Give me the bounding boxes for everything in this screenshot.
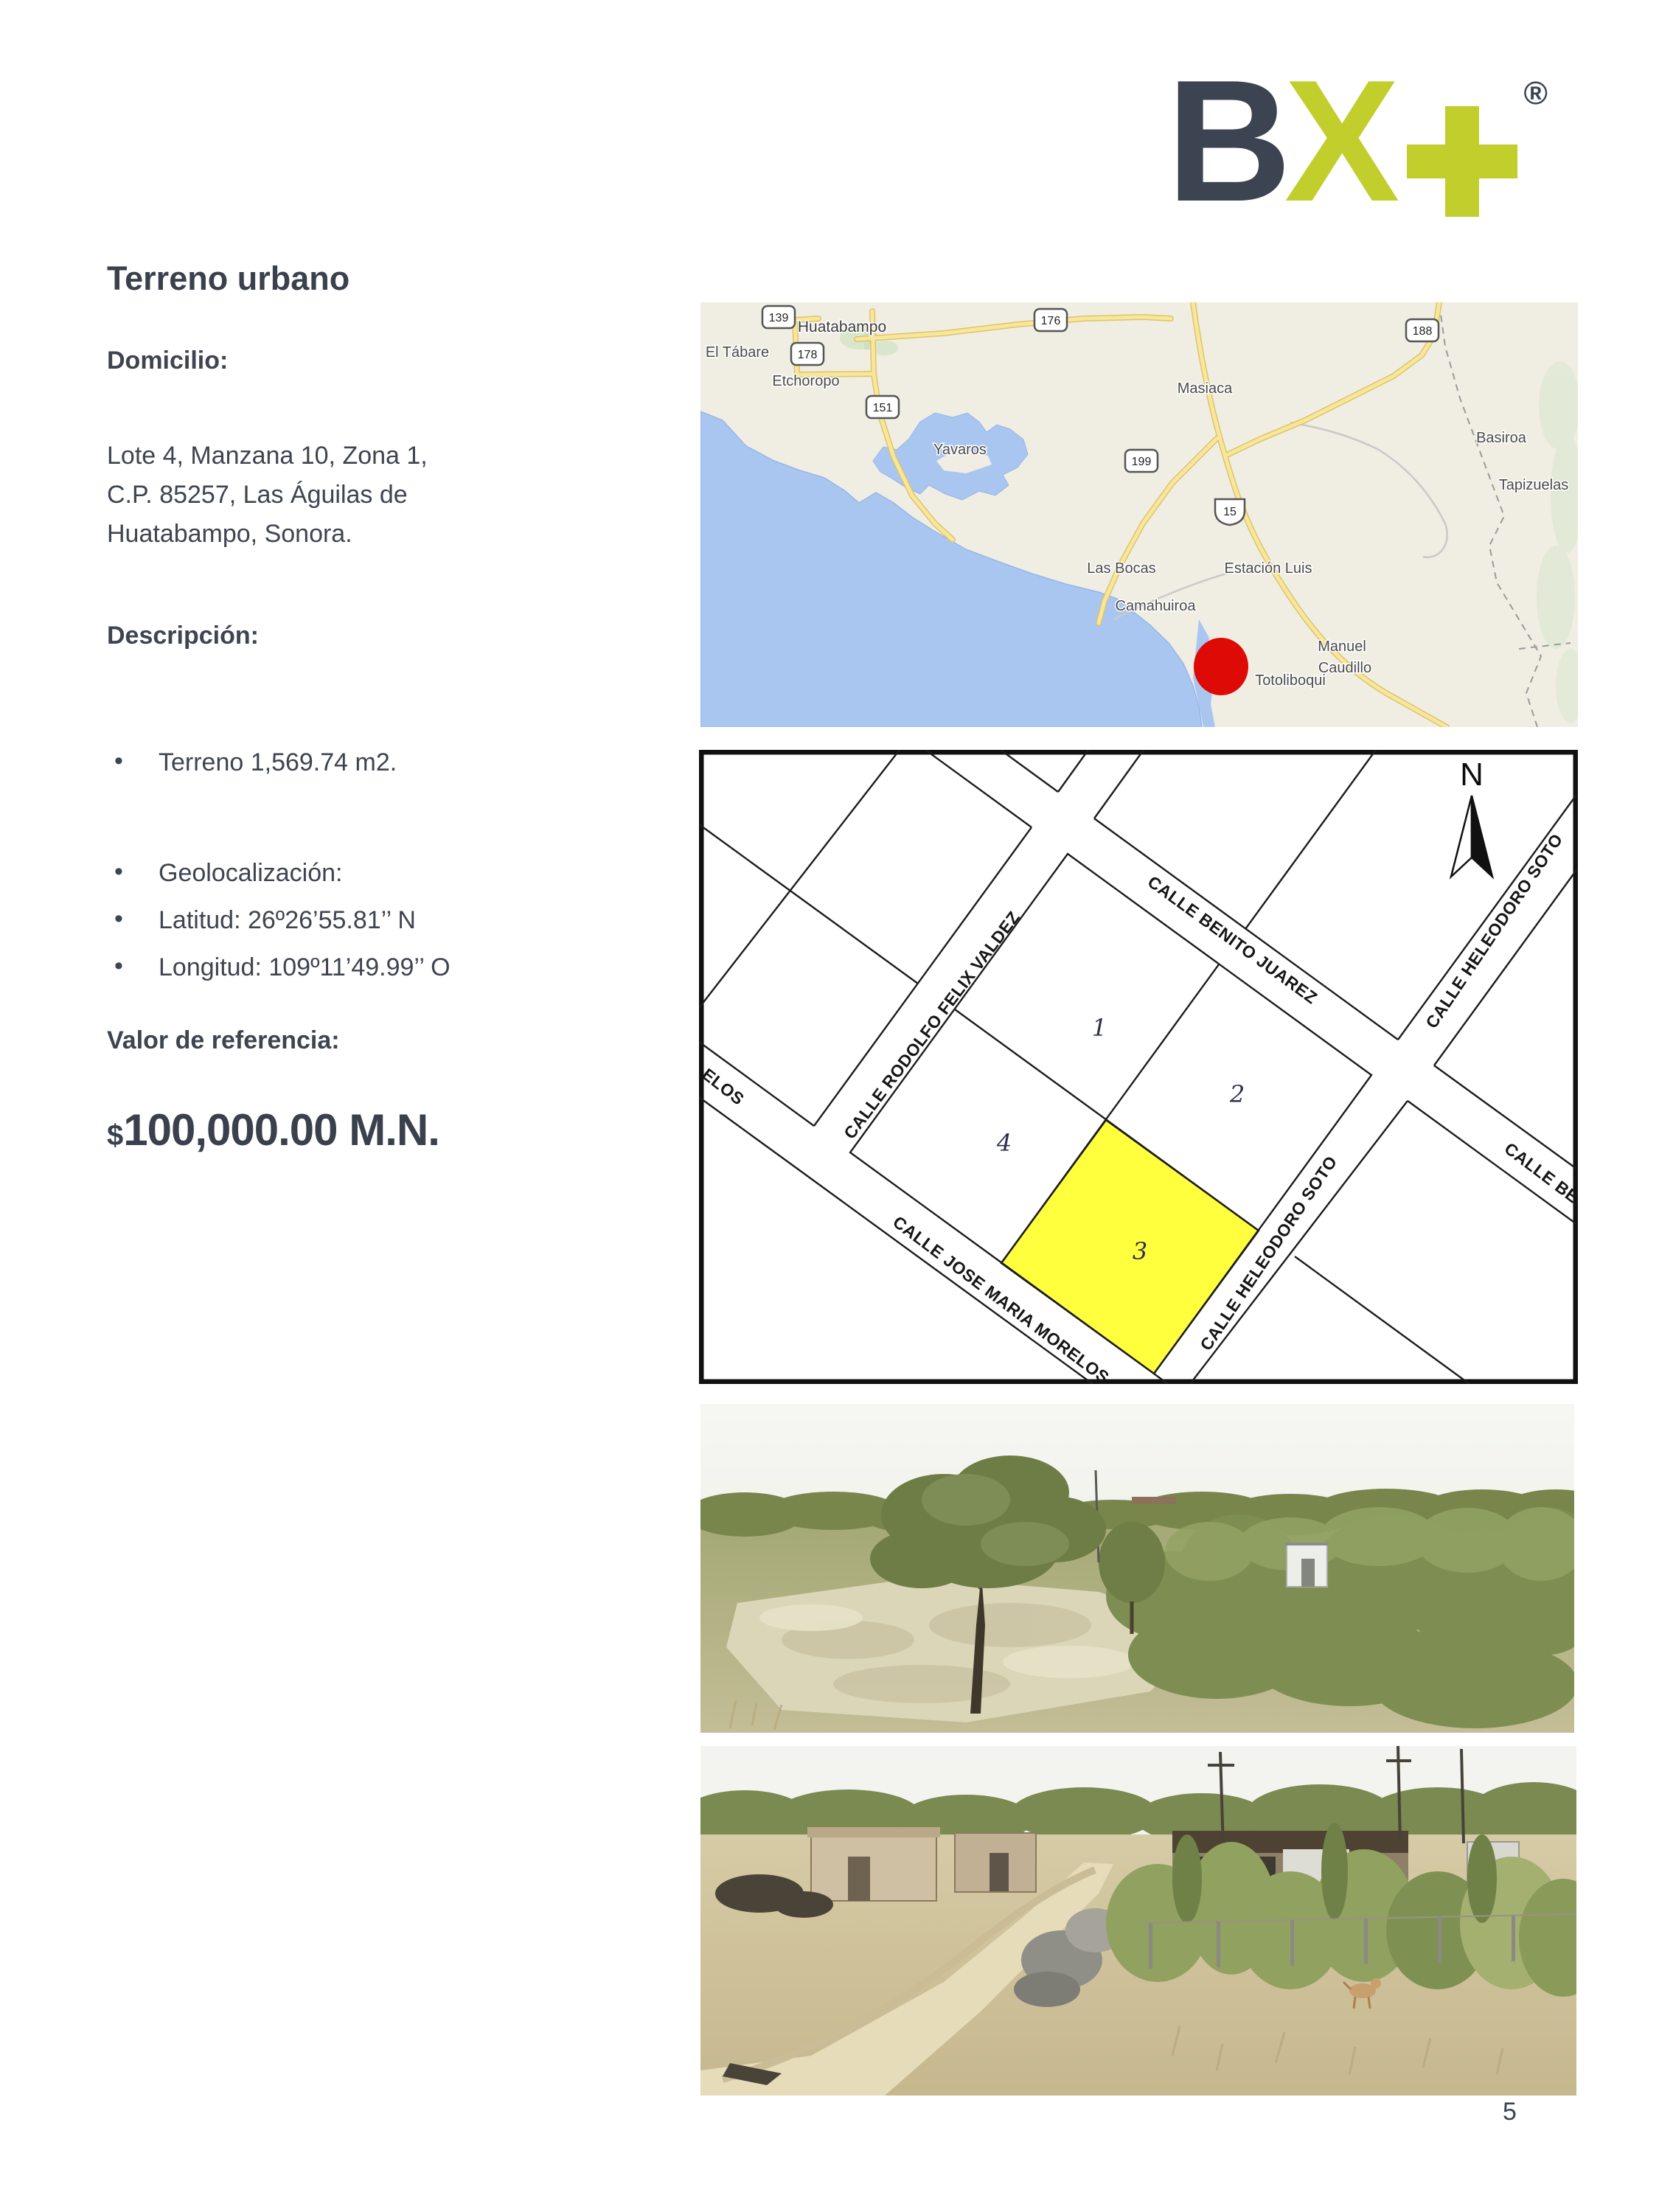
logo-letter-x: X (1284, 71, 1400, 211)
town-label: Huatabampo (798, 319, 886, 335)
list-item: Latitud: 26º26’55.81’’ N (107, 897, 451, 944)
route-shield: 15 (1223, 506, 1237, 518)
town-label: Basiroa (1476, 430, 1527, 446)
address-heading: Domicilio: (107, 347, 228, 375)
town-label: Tapizuelas (1499, 477, 1569, 493)
value-heading: Valor de referencia: (107, 1026, 340, 1055)
address-line: Huatabampo, Sonora. (107, 515, 428, 554)
route-shield: 178 (798, 349, 818, 361)
location-marker (1194, 638, 1248, 695)
list-item: Geolocalización: (107, 849, 451, 897)
terrain-photo-1 (700, 1404, 1574, 1733)
page-title: Terreno urbano (107, 260, 349, 298)
town-label: Camahuiroa (1116, 598, 1197, 614)
white-shed (1284, 1544, 1329, 1587)
town-label: Manuel (1318, 639, 1366, 655)
feature-list: Terreno 1,569.74 m2. (107, 748, 397, 777)
address-block: Lote 4, Manzana 10, Zona 1, C.P. 85257, … (107, 437, 428, 554)
lot-number: 3 (1133, 1237, 1147, 1265)
route-shield: 139 (769, 312, 789, 324)
list-item: Terreno 1,569.74 m2. (107, 748, 397, 777)
town-label: Masiaca (1178, 380, 1233, 397)
price-amount: 100,000.00 M.N. (123, 1105, 439, 1155)
reference-value: $100,000.00 M.N. (107, 1105, 439, 1155)
locator-map: 139 176 188 178 151 199 15 Huatabampo El… (700, 302, 1578, 727)
route-shield: 188 (1413, 325, 1433, 338)
site-plan: CALLE RODOLFO FELIX VALDEZ CALLE BENITO … (699, 750, 1578, 1384)
address-line: C.P. 85257, Las Águilas de (107, 476, 428, 515)
town-label: Yavaros (933, 442, 987, 458)
north-label: N (1460, 757, 1484, 793)
description-heading: Descripción: (107, 622, 259, 650)
lot-number: 4 (996, 1129, 1012, 1157)
geo-feature-list: Geolocalización: Latitud: 26º26’55.81’’ … (107, 849, 451, 991)
town-label: Caudillo (1318, 660, 1371, 676)
lot-number: 2 (1229, 1080, 1245, 1108)
town-label: Totoliboqui (1255, 672, 1326, 689)
town-label: Etchoropo (772, 373, 839, 389)
document-page: B X ® Terreno urbano Domicilio: Lote 4, … (0, 0, 1659, 2212)
terrain-photo-2 (700, 1746, 1576, 2096)
logo-letter-b: B (1166, 71, 1287, 211)
town-label: Las Bocas (1087, 560, 1155, 577)
town-label: Estación Luis (1225, 560, 1312, 577)
town-label: El Tábare (706, 344, 769, 361)
route-shield: 151 (873, 402, 893, 414)
currency-symbol: $ (107, 1119, 123, 1152)
route-shield: 199 (1132, 456, 1152, 468)
bx-logo: B X ® (1166, 71, 1548, 217)
lot-number: 1 (1092, 1014, 1107, 1042)
route-shield: 176 (1041, 315, 1061, 327)
registered-mark: ® (1523, 75, 1547, 112)
list-item: Longitud: 109º11’49.99’’ O (107, 944, 451, 991)
plus-icon (1407, 106, 1517, 217)
address-line: Lote 4, Manzana 10, Zona 1, (107, 437, 428, 476)
page-number: 5 (1503, 2098, 1517, 2126)
